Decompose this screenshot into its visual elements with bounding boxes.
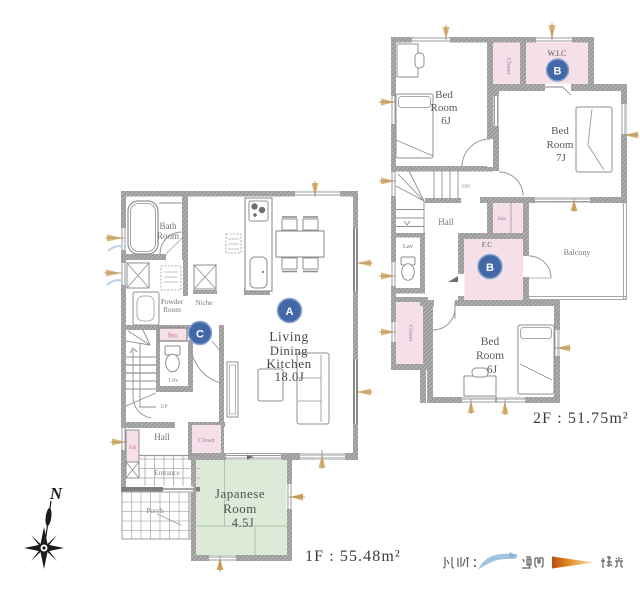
- svg-text:Bed: Bed: [481, 336, 500, 348]
- svg-text:Room: Room: [431, 102, 458, 114]
- svg-text:N: N: [49, 484, 63, 503]
- svg-text:Sto.: Sto.: [167, 332, 178, 340]
- svg-text:Closet: Closet: [198, 437, 215, 444]
- svg-text:Kitchen: Kitchen: [266, 356, 311, 371]
- svg-text:1F : 55.48m²: 1F : 55.48m²: [305, 548, 401, 565]
- svg-text:C: C: [196, 329, 204, 341]
- svg-text:Room: Room: [223, 501, 257, 516]
- svg-text:A: A: [286, 306, 294, 318]
- svg-text:Closet: Closet: [505, 58, 512, 75]
- svg-text:Room: Room: [476, 350, 504, 362]
- svg-text:UP: UP: [160, 404, 167, 410]
- svg-text:18.0J: 18.0J: [275, 370, 305, 384]
- svg-text:6J: 6J: [441, 115, 452, 127]
- svg-text:Room: Room: [547, 139, 574, 151]
- svg-text:B: B: [486, 262, 494, 274]
- svg-text:DN: DN: [462, 184, 470, 190]
- svg-text:2F : 51.75m²: 2F : 51.75m²: [533, 410, 629, 427]
- svg-text:Balcony: Balcony: [564, 248, 591, 257]
- svg-text:7J: 7J: [556, 152, 567, 164]
- svg-text:Lav: Lav: [403, 243, 414, 250]
- svg-text:Porch: Porch: [146, 506, 164, 515]
- svg-text:S.B: S.B: [129, 446, 137, 451]
- svg-text:Bed: Bed: [435, 89, 453, 101]
- svg-text:Bath: Bath: [160, 221, 177, 231]
- svg-text:Room: Room: [157, 231, 179, 241]
- svg-text:6J: 6J: [487, 364, 498, 376]
- svg-text:Niche: Niche: [196, 299, 213, 307]
- svg-text:Bed: Bed: [551, 125, 569, 137]
- svg-text:Closet: Closet: [407, 325, 414, 342]
- svg-text:Sto.: Sto.: [498, 216, 507, 222]
- svg-text:1.0v: 1.0v: [168, 378, 179, 384]
- svg-text:W.I.C: W.I.C: [548, 49, 567, 58]
- svg-text:4.5J: 4.5J: [232, 516, 255, 530]
- svg-text:B: B: [554, 66, 562, 78]
- svg-text:Living: Living: [269, 329, 309, 344]
- svg-text:Hall: Hall: [438, 217, 454, 227]
- svg-text:Hall: Hall: [154, 432, 170, 442]
- svg-text:Japanese: Japanese: [215, 486, 265, 501]
- svg-text:Room: Room: [163, 305, 181, 314]
- svg-text:F.C: F.C: [482, 240, 492, 249]
- svg-text:Entrance: Entrance: [154, 469, 180, 477]
